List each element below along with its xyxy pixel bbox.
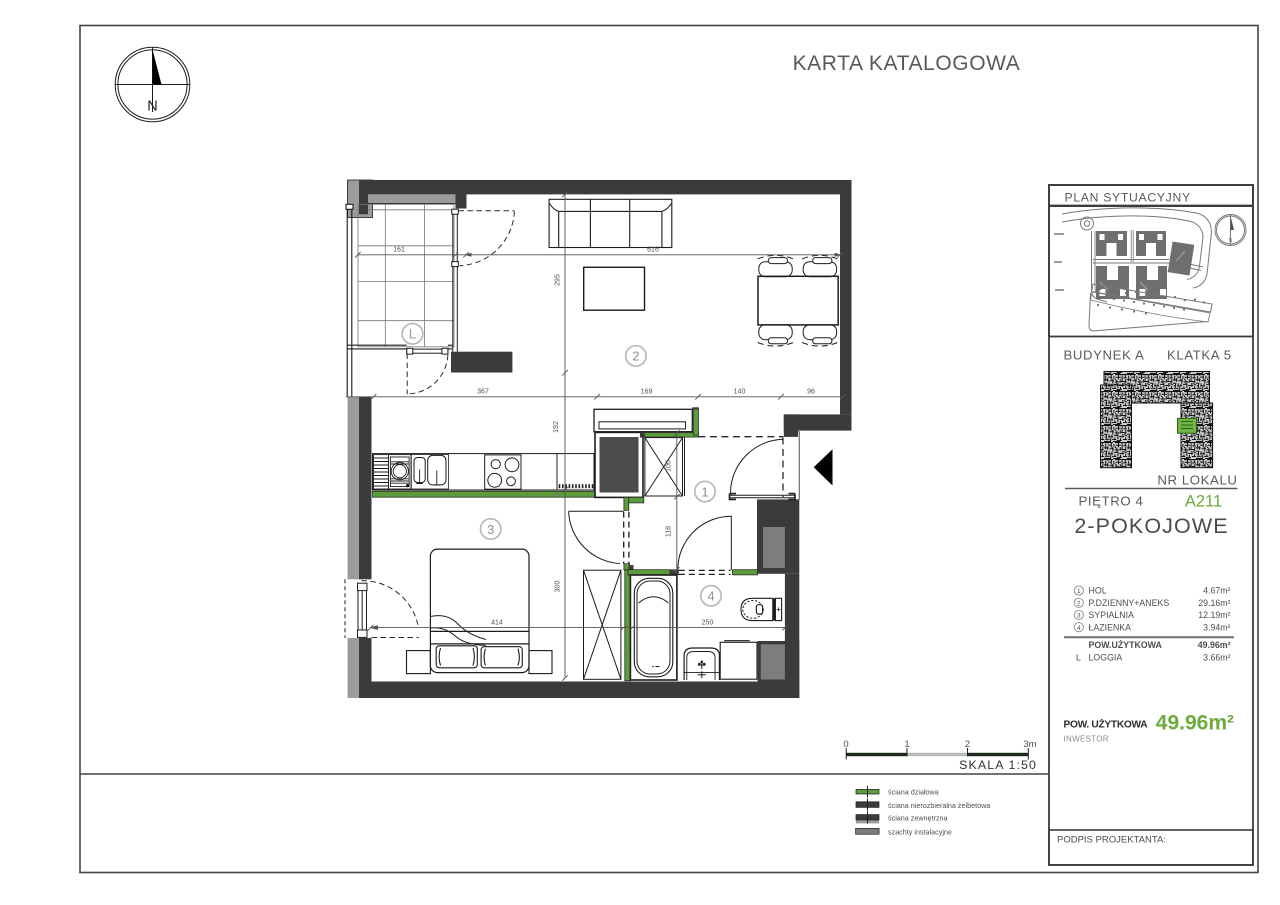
svg-text:169: 169 xyxy=(641,389,653,396)
svg-text:SYPIALNIA: SYPIALNIA xyxy=(1089,610,1135,620)
svg-text:L: L xyxy=(1076,652,1081,662)
svg-text:3.94m²: 3.94m² xyxy=(1203,622,1230,632)
svg-text:POW. UŻYTKOWA: POW. UŻYTKOWA xyxy=(1064,718,1149,731)
svg-text:192: 192 xyxy=(553,421,560,433)
svg-text:ŁAZIENKA: ŁAZIENKA xyxy=(1089,622,1132,632)
svg-text:414: 414 xyxy=(491,619,503,626)
svg-text:N: N xyxy=(1229,238,1233,244)
svg-text:367: 367 xyxy=(477,389,489,396)
svg-text:0: 0 xyxy=(843,739,848,750)
svg-text:100: 100 xyxy=(666,460,673,472)
svg-text:118: 118 xyxy=(666,526,673,537)
svg-text:1: 1 xyxy=(701,484,708,499)
svg-text:123: 123 xyxy=(552,492,560,498)
svg-text:12.19m²: 12.19m² xyxy=(1198,610,1230,620)
svg-text:A211: A211 xyxy=(1185,493,1222,511)
svg-text:N: N xyxy=(147,99,157,115)
svg-text:HOL: HOL xyxy=(1089,586,1107,596)
svg-text:SKALA 1:50: SKALA 1:50 xyxy=(959,758,1037,772)
svg-text:12: 12 xyxy=(623,652,629,658)
svg-text:szachty instalacyjne: szachty instalacyjne xyxy=(888,828,952,837)
svg-text:96: 96 xyxy=(807,389,815,396)
svg-text:3.66m²: 3.66m² xyxy=(1203,652,1230,662)
svg-text:140: 140 xyxy=(734,389,746,396)
svg-text:L: L xyxy=(409,327,417,342)
svg-text:3: 3 xyxy=(1077,613,1081,620)
svg-text:KLATKA 5: KLATKA 5 xyxy=(1167,348,1232,363)
svg-text:3: 3 xyxy=(487,522,494,537)
svg-text:NR LOKALU: NR LOKALU xyxy=(1157,473,1237,488)
svg-text:2: 2 xyxy=(1077,600,1081,607)
svg-text:ściana nierozbieralna żelbetow: ściana nierozbieralna żelbetowa xyxy=(888,801,990,810)
svg-text:PIĘTRO 4: PIĘTRO 4 xyxy=(1079,494,1144,509)
svg-text:295: 295 xyxy=(555,274,562,286)
svg-text:BUDYNEK A: BUDYNEK A xyxy=(1064,348,1145,363)
svg-text:49.96m²: 49.96m² xyxy=(1156,712,1234,735)
svg-text:616: 616 xyxy=(647,247,659,254)
svg-text:PLAN SYTUACYJNY: PLAN SYTUACYJNY xyxy=(1065,191,1191,205)
svg-text:ściana zewnętrzna: ściana zewnętrzna xyxy=(888,814,948,823)
svg-text:300: 300 xyxy=(555,581,562,593)
svg-text:4: 4 xyxy=(707,589,714,604)
svg-text:4: 4 xyxy=(1077,625,1081,632)
svg-text:3m: 3m xyxy=(1023,739,1036,750)
svg-text:LOGGIA: LOGGIA xyxy=(1089,652,1123,662)
svg-text:4.67m²: 4.67m² xyxy=(1203,586,1230,596)
svg-text:INWESTOR: INWESTOR xyxy=(1064,735,1109,744)
svg-text:1: 1 xyxy=(1077,588,1081,595)
svg-text:PODPIS PROJEKTANTA:: PODPIS PROJEKTANTA: xyxy=(1057,835,1166,846)
svg-text:2: 2 xyxy=(632,349,639,364)
svg-text:49.96m²: 49.96m² xyxy=(1198,640,1231,650)
svg-text:2-POKOJOWE: 2-POKOJOWE xyxy=(1074,514,1228,538)
svg-text:29.16m²: 29.16m² xyxy=(1198,598,1230,608)
svg-text:2: 2 xyxy=(965,739,970,750)
svg-text:P.DZIENNY+ANEKS: P.DZIENNY+ANEKS xyxy=(1089,598,1170,608)
svg-text:1: 1 xyxy=(904,739,909,750)
svg-text:161: 161 xyxy=(393,247,405,254)
svg-text:KARTA KATALOGOWA: KARTA KATALOGOWA xyxy=(793,52,1021,75)
svg-text:250: 250 xyxy=(702,619,714,626)
svg-text:POW.UŻYTKOWA: POW.UŻYTKOWA xyxy=(1089,640,1163,650)
svg-text:ściana działowa: ściana działowa xyxy=(888,788,939,797)
